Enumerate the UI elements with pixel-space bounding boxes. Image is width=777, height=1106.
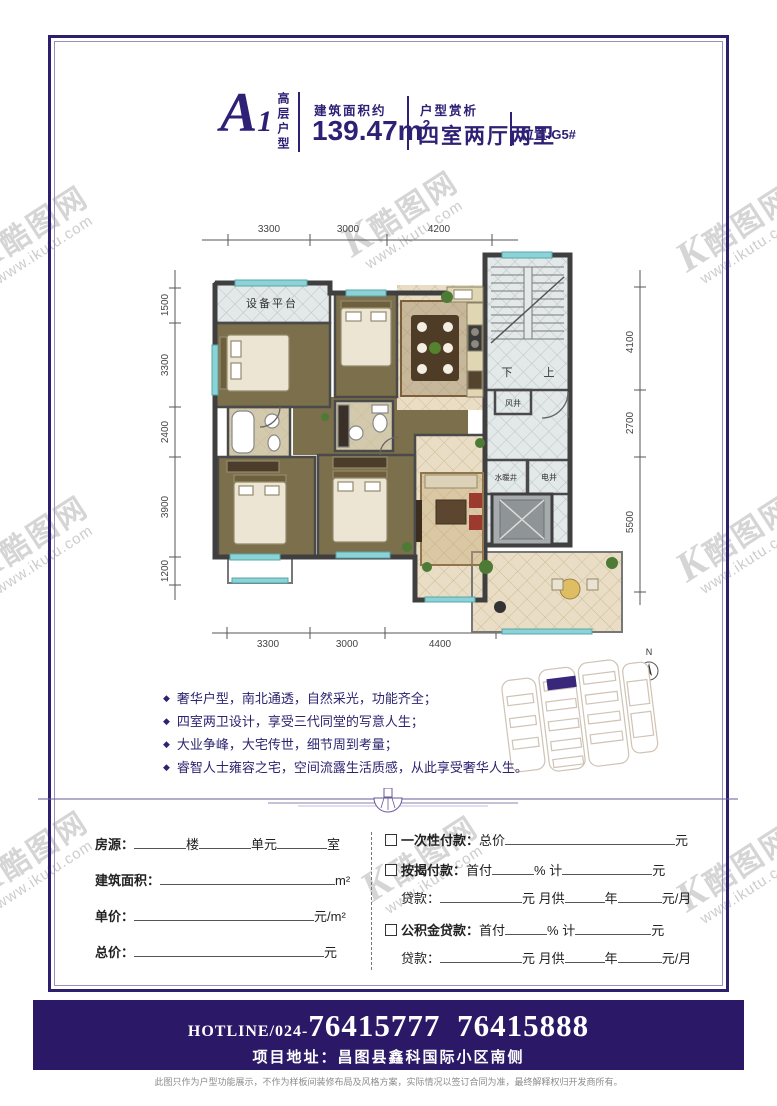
fund-label: 公积金贷款： xyxy=(401,923,479,938)
mortgage-checkbox[interactable] xyxy=(385,864,397,876)
area-row: 建筑面积：m² xyxy=(95,870,350,889)
header-divider xyxy=(298,92,300,152)
hotline-prefix: HOTLINE/024- xyxy=(188,1023,308,1040)
mortgage-loan-row: 贷款：元 月供年元/月 xyxy=(401,888,691,907)
area-label: 建筑面积： xyxy=(95,873,160,888)
stairs-down-label: 下 xyxy=(502,367,513,379)
watermark-k-icon: K xyxy=(0,536,13,591)
hotline-band: HOTLINE/024-76415777 76415888 项目地址：昌图县鑫科… xyxy=(33,1000,744,1070)
platform-label: 设备平台 xyxy=(246,296,298,310)
feature-list: ◆奢华户型，南北通透，自然采光，功能齐全； ◆四室两卫设计，享受三代同堂的写意人… xyxy=(163,688,528,780)
floor-plan: 3300 3000 4200 3300 3000 4400 1500 3300 … xyxy=(150,185,660,650)
fund-checkbox[interactable] xyxy=(385,924,397,936)
onetime-label: 一次性付款： xyxy=(401,833,479,848)
dim-label: 3000 xyxy=(336,639,359,650)
blank-field[interactable] xyxy=(565,890,605,903)
blank-field[interactable] xyxy=(505,922,547,935)
housing-label: 房源： xyxy=(95,837,134,852)
area-value: 139.47m2 xyxy=(312,115,430,147)
mortgage-label: 按揭付款： xyxy=(401,863,466,878)
blank-field[interactable] xyxy=(562,862,652,875)
diamond-bullet-icon: ◆ xyxy=(163,716,170,726)
diamond-bullet-icon: ◆ xyxy=(163,739,170,749)
feature-item: ◆大业争峰，大宅传世，细节周到考量； xyxy=(163,734,528,757)
housing-row: 房源：楼单元室 xyxy=(95,834,340,853)
form-divider xyxy=(371,832,372,970)
disclaimer: 此图只作为户型功能展示，不作为样板间装修布局及风格方案，实际情况以签订合同为准，… xyxy=(0,1075,777,1088)
diamond-bullet-icon: ◆ xyxy=(163,693,170,703)
unit-price-row: 单价：元/m² xyxy=(95,906,346,925)
watermark-k-icon: K xyxy=(0,851,13,906)
plumbing-shaft-label: 水暖井 xyxy=(495,472,518,482)
dim-label: 3900 xyxy=(160,495,171,518)
dimension-right xyxy=(634,270,646,605)
watermark: K酷图网 www.ikutu.com xyxy=(646,802,777,948)
blank-field[interactable] xyxy=(199,836,251,849)
dim-label: 3300 xyxy=(258,224,281,235)
flyer-page: K酷图网 www.ikutu.com K酷图网 www.ikutu.com K酷… xyxy=(0,0,777,1106)
blank-field[interactable] xyxy=(505,832,675,845)
unit-letter: A xyxy=(220,82,257,144)
wind-shaft-label: 风井 xyxy=(505,398,521,408)
ornament-divider xyxy=(38,788,738,818)
blank-field[interactable] xyxy=(618,890,662,903)
header-divider xyxy=(510,112,512,146)
feature-item: ◆睿智人士雍容之宅，空间流露生活质感，从此享受奢华人生。 xyxy=(163,757,528,780)
dim-label: 1200 xyxy=(160,559,171,582)
dimension-top xyxy=(202,234,518,246)
svg-text:N: N xyxy=(646,647,653,657)
blank-field[interactable] xyxy=(160,872,335,885)
feature-item: ◆四室两卫设计，享受三代同堂的写意人生； xyxy=(163,711,528,734)
dim-label: 4400 xyxy=(429,639,452,650)
header-divider xyxy=(407,96,409,150)
total-price-label: 总价： xyxy=(95,945,134,960)
blank-field[interactable] xyxy=(575,922,651,935)
blank-field[interactable] xyxy=(277,836,327,849)
mortgage-payment-row: 按揭付款：首付% 计元 xyxy=(385,860,665,879)
dim-label: 5500 xyxy=(625,510,636,533)
dimension-bottom xyxy=(212,627,512,639)
living-set xyxy=(416,473,483,565)
watermark: K酷图网 www.ikutu.com xyxy=(646,162,777,308)
blank-field[interactable] xyxy=(134,836,186,849)
hotline-numbers: 76415777 76415888 xyxy=(308,1008,589,1043)
blank-field[interactable] xyxy=(565,950,605,963)
watermark: K酷图网 www.ikutu.com xyxy=(646,472,777,618)
appreciation-label: 户型赏析 xyxy=(420,100,478,119)
location-label: 位置:G5# xyxy=(521,124,576,143)
unit-number: 1 xyxy=(257,105,272,138)
dim-label: 2400 xyxy=(160,420,171,443)
hotline-line: HOTLINE/024-76415777 76415888 xyxy=(33,1008,744,1044)
dim-label: 1500 xyxy=(160,293,171,316)
elevator xyxy=(492,494,552,545)
dim-label: 3000 xyxy=(337,224,360,235)
blank-field[interactable] xyxy=(618,950,662,963)
dim-label: 4200 xyxy=(428,224,451,235)
watermark: K酷图网 www.ikutu.com xyxy=(0,472,129,618)
total-price-row: 总价：元 xyxy=(95,942,337,961)
dim-label: 3300 xyxy=(257,639,280,650)
electric-shaft-label: 电井 xyxy=(541,472,557,482)
unit-price-label: 单价： xyxy=(95,909,134,924)
unit-type-vertical-label: 高层户型 xyxy=(276,92,290,154)
dim-label: 4100 xyxy=(625,330,636,353)
watermark-k-icon: K xyxy=(0,226,13,281)
stairs-up-label: 上 xyxy=(544,366,555,379)
blank-field[interactable] xyxy=(440,890,522,903)
project-address: 项目地址：昌图县鑫科国际小区南侧 xyxy=(33,1046,744,1067)
onetime-payment-row: 一次性付款：总价元 xyxy=(385,830,688,849)
diamond-bullet-icon: ◆ xyxy=(163,762,170,772)
dining-set xyxy=(401,301,469,396)
unit-logo: A1 xyxy=(220,88,272,139)
dim-label: 3300 xyxy=(160,353,171,376)
watermark: K酷图网 www.ikutu.com xyxy=(0,162,129,308)
blank-field[interactable] xyxy=(134,908,314,921)
dim-label: 2700 xyxy=(625,411,636,434)
watermark-k-icon: K xyxy=(667,226,718,281)
blank-field[interactable] xyxy=(440,950,522,963)
watermark-k-icon: K xyxy=(667,536,718,591)
blank-field[interactable] xyxy=(492,862,534,875)
fund-loan-row: 公积金贷款：首付% 计元 xyxy=(385,920,664,939)
fund-loan-detail-row: 贷款：元 月供年元/月 xyxy=(401,948,691,967)
feature-item: ◆奢华户型，南北通透，自然采光，功能齐全； xyxy=(163,688,528,711)
blank-field[interactable] xyxy=(134,944,324,957)
onetime-checkbox[interactable] xyxy=(385,834,397,846)
